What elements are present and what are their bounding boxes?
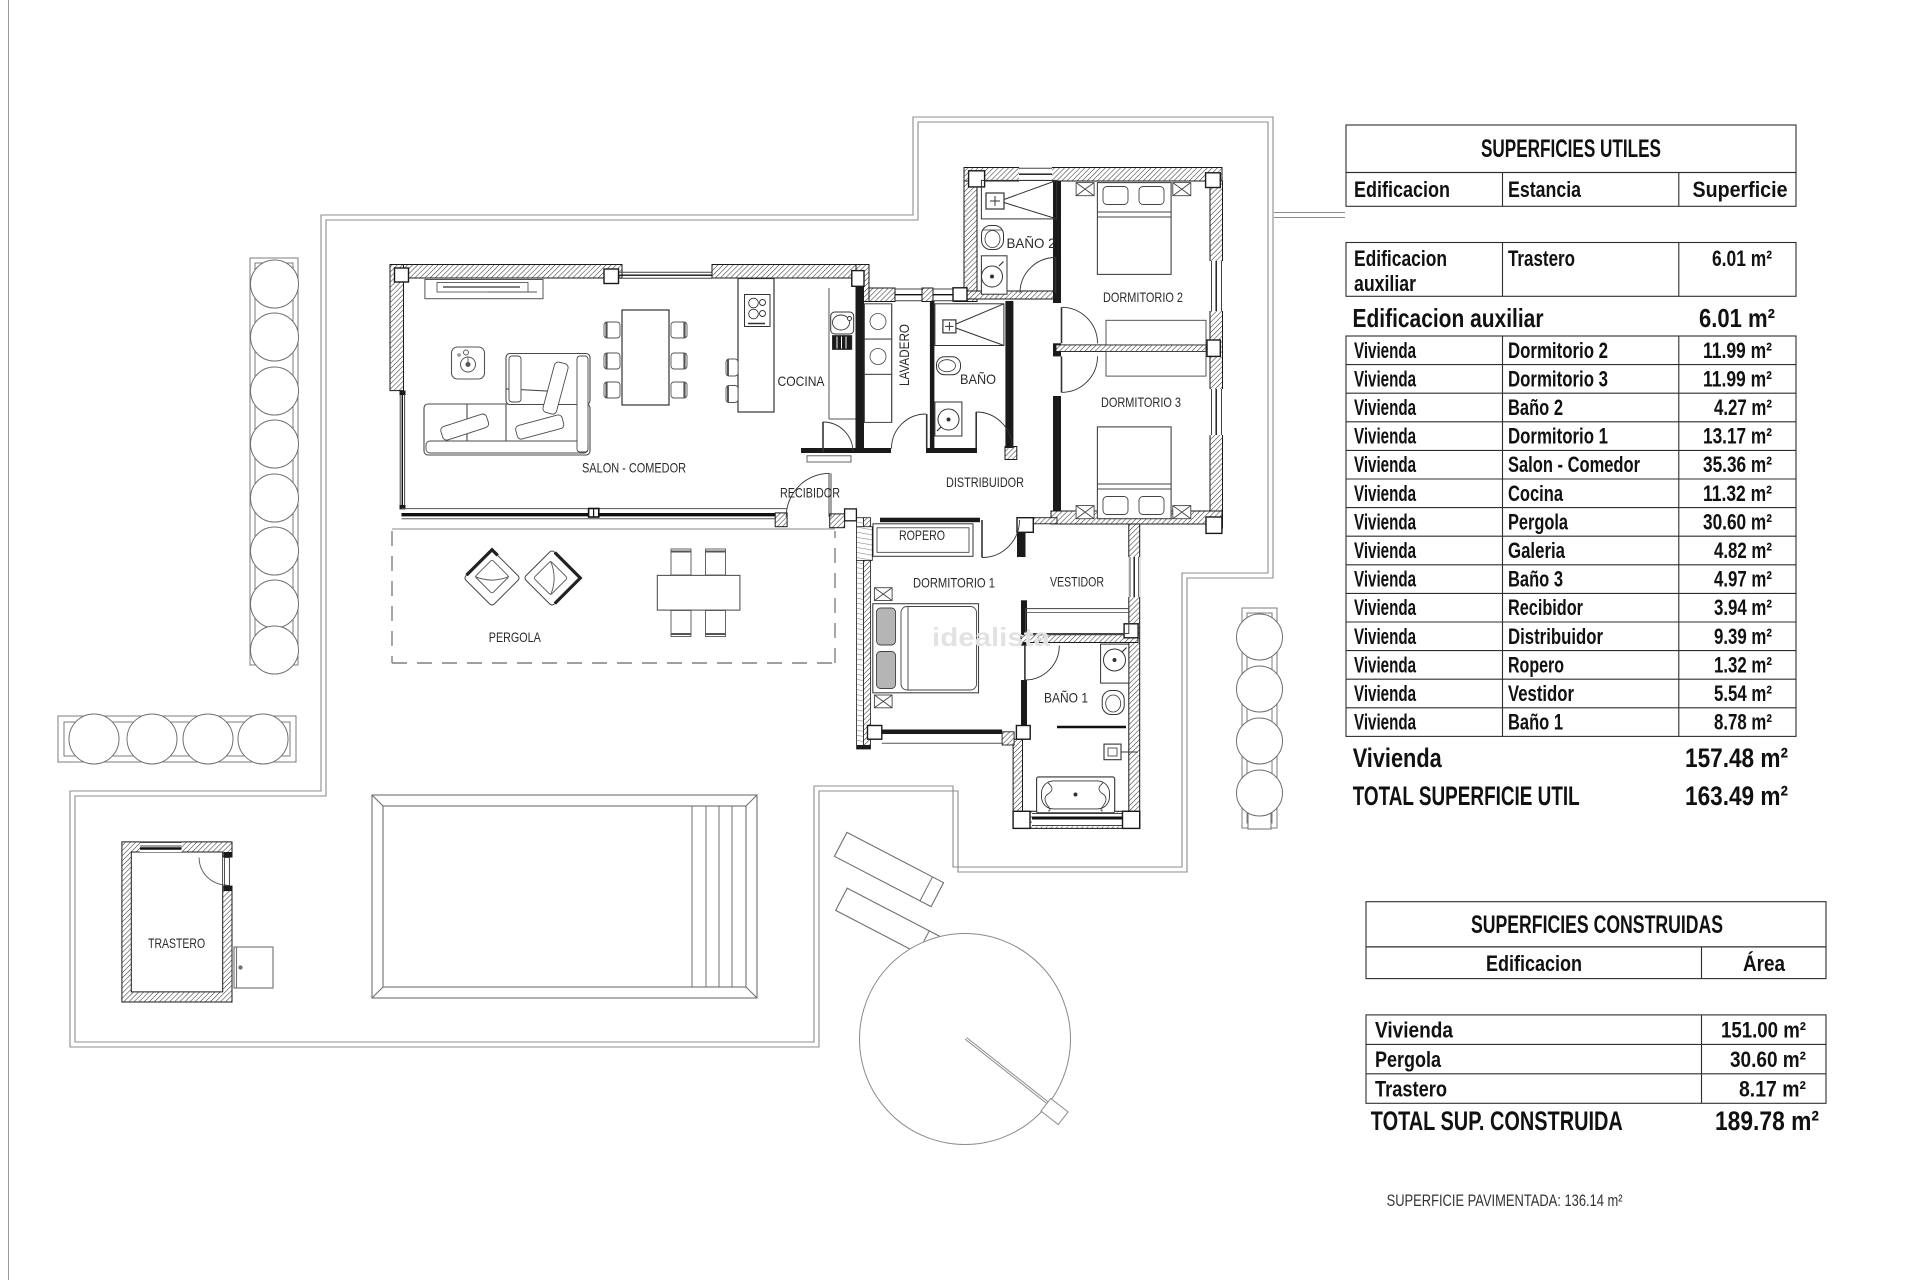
svg-text:11.99 m²: 11.99 m²	[1703, 338, 1772, 363]
svg-text:Vivienda: Vivienda	[1354, 338, 1417, 363]
svg-text:DORMITORIO 2: DORMITORIO 2	[1103, 289, 1183, 305]
svg-text:Edificacion: Edificacion	[1354, 246, 1447, 271]
svg-text:35.36 m²: 35.36 m²	[1703, 452, 1772, 477]
svg-text:4.27 m²: 4.27 m²	[1714, 395, 1772, 420]
svg-text:163.49 m²: 163.49 m²	[1685, 781, 1788, 811]
svg-text:Pergola: Pergola	[1508, 509, 1569, 534]
svg-text:Dormitorio 2: Dormitorio 2	[1508, 338, 1608, 363]
svg-text:Vivienda: Vivienda	[1354, 681, 1417, 706]
svg-text:Vivienda: Vivienda	[1354, 595, 1417, 620]
svg-text:ROPERO: ROPERO	[899, 527, 945, 543]
svg-text:DISTRIBUIDOR: DISTRIBUIDOR	[946, 474, 1024, 490]
svg-text:Vivienda: Vivienda	[1354, 538, 1417, 563]
svg-text:Cocina: Cocina	[1508, 481, 1564, 506]
svg-text:Estancia: Estancia	[1508, 177, 1582, 202]
svg-text:BAÑO 1: BAÑO 1	[1044, 690, 1088, 706]
svg-text:11.32 m²: 11.32 m²	[1703, 481, 1772, 506]
svg-text:Trastero: Trastero	[1508, 246, 1575, 271]
svg-text:Trastero: Trastero	[1375, 1076, 1447, 1101]
svg-text:DORMITORIO 1: DORMITORIO 1	[913, 575, 995, 591]
svg-text:Vivienda: Vivienda	[1354, 366, 1417, 391]
svg-text:TRASTERO: TRASTERO	[148, 935, 205, 951]
svg-text:TOTAL SUPERFICIE UTIL: TOTAL SUPERFICIE UTIL	[1353, 781, 1580, 811]
svg-text:8.17 m²: 8.17 m²	[1739, 1076, 1806, 1101]
svg-text:151.00 m²: 151.00 m²	[1721, 1018, 1806, 1043]
svg-text:Vivienda: Vivienda	[1354, 395, 1417, 420]
svg-text:Vivienda: Vivienda	[1354, 652, 1417, 677]
svg-text:Vivienda: Vivienda	[1354, 710, 1417, 735]
svg-text:Dormitorio 1: Dormitorio 1	[1508, 424, 1608, 449]
svg-text:Área: Área	[1743, 951, 1786, 976]
svg-text:5.54 m²: 5.54 m²	[1714, 681, 1772, 706]
svg-text:BAÑO 2: BAÑO 2	[1007, 235, 1056, 251]
svg-text:idealista: idealista	[932, 622, 1051, 652]
svg-text:SUPERFICIES CONSTRUIDAS: SUPERFICIES CONSTRUIDAS	[1471, 911, 1723, 939]
svg-text:Superficie: Superficie	[1693, 177, 1788, 202]
svg-text:Salon - Comedor: Salon - Comedor	[1508, 452, 1640, 477]
svg-text:VESTIDOR: VESTIDOR	[1050, 574, 1104, 590]
svg-text:Baño 1: Baño 1	[1508, 710, 1563, 735]
svg-text:Galeria: Galeria	[1508, 538, 1566, 563]
svg-text:auxiliar: auxiliar	[1354, 271, 1416, 296]
svg-text:TOTAL SUP. CONSTRUIDA: TOTAL SUP. CONSTRUIDA	[1371, 1106, 1623, 1136]
svg-text:Vivienda: Vivienda	[1354, 452, 1417, 477]
svg-text:DORMITORIO 3: DORMITORIO 3	[1101, 394, 1181, 410]
svg-text:4.97 m²: 4.97 m²	[1714, 567, 1772, 592]
svg-text:11.99 m²: 11.99 m²	[1703, 366, 1772, 391]
svg-text:SALON - COMEDOR: SALON - COMEDOR	[582, 460, 686, 476]
svg-text:Pergola: Pergola	[1375, 1047, 1442, 1072]
svg-text:8.78 m²: 8.78 m²	[1714, 710, 1772, 735]
svg-text:Vivienda: Vivienda	[1354, 567, 1417, 592]
svg-text:RECIBIDOR: RECIBIDOR	[780, 485, 840, 501]
svg-text:1.32 m²: 1.32 m²	[1714, 652, 1772, 677]
svg-text:Vivienda: Vivienda	[1354, 509, 1417, 534]
svg-text:Baño 2: Baño 2	[1508, 395, 1563, 420]
svg-text:BAÑO: BAÑO	[960, 371, 996, 387]
svg-text:Dormitorio 3: Dormitorio 3	[1508, 366, 1608, 391]
svg-text:Edificacion: Edificacion	[1354, 177, 1450, 202]
svg-text:Vivienda: Vivienda	[1354, 424, 1417, 449]
svg-text:Vivienda: Vivienda	[1353, 743, 1443, 773]
svg-text:Vivienda: Vivienda	[1375, 1018, 1454, 1043]
svg-text:Distribuidor: Distribuidor	[1508, 624, 1603, 649]
svg-text:6.01 m²: 6.01 m²	[1712, 246, 1772, 271]
svg-text:3.94 m²: 3.94 m²	[1714, 595, 1772, 620]
svg-text:Edificacion: Edificacion	[1486, 951, 1582, 976]
svg-text:PERGOLA: PERGOLA	[489, 629, 541, 645]
svg-text:4.82 m²: 4.82 m²	[1714, 538, 1772, 563]
svg-text:189.78 m²: 189.78 m²	[1715, 1106, 1819, 1136]
svg-text:COCINA: COCINA	[778, 373, 826, 389]
svg-text:Ropero: Ropero	[1508, 652, 1564, 677]
svg-text:Recibidor: Recibidor	[1508, 595, 1583, 620]
svg-text:Vivienda: Vivienda	[1354, 624, 1417, 649]
svg-text:30.60 m²: 30.60 m²	[1703, 509, 1772, 534]
svg-text:157.48 m²: 157.48 m²	[1685, 743, 1788, 773]
svg-text:30.60 m²: 30.60 m²	[1730, 1047, 1806, 1072]
svg-text:Edificacion auxiliar: Edificacion auxiliar	[1353, 303, 1544, 333]
svg-text:13.17 m²: 13.17 m²	[1703, 424, 1772, 449]
svg-text:LAVADERO: LAVADERO	[896, 324, 912, 386]
svg-text:Vestidor: Vestidor	[1508, 681, 1574, 706]
svg-text:SUPERFICIES UTILES: SUPERFICIES UTILES	[1481, 135, 1661, 163]
svg-text:SUPERFICIE PAVIMENTADA: 136.14: SUPERFICIE PAVIMENTADA: 136.14 m²	[1387, 1191, 1623, 1210]
svg-text:9.39 m²: 9.39 m²	[1714, 624, 1772, 649]
svg-text:Vivienda: Vivienda	[1354, 481, 1417, 506]
svg-text:Baño 3: Baño 3	[1508, 567, 1563, 592]
svg-text:6.01 m²: 6.01 m²	[1699, 303, 1775, 333]
